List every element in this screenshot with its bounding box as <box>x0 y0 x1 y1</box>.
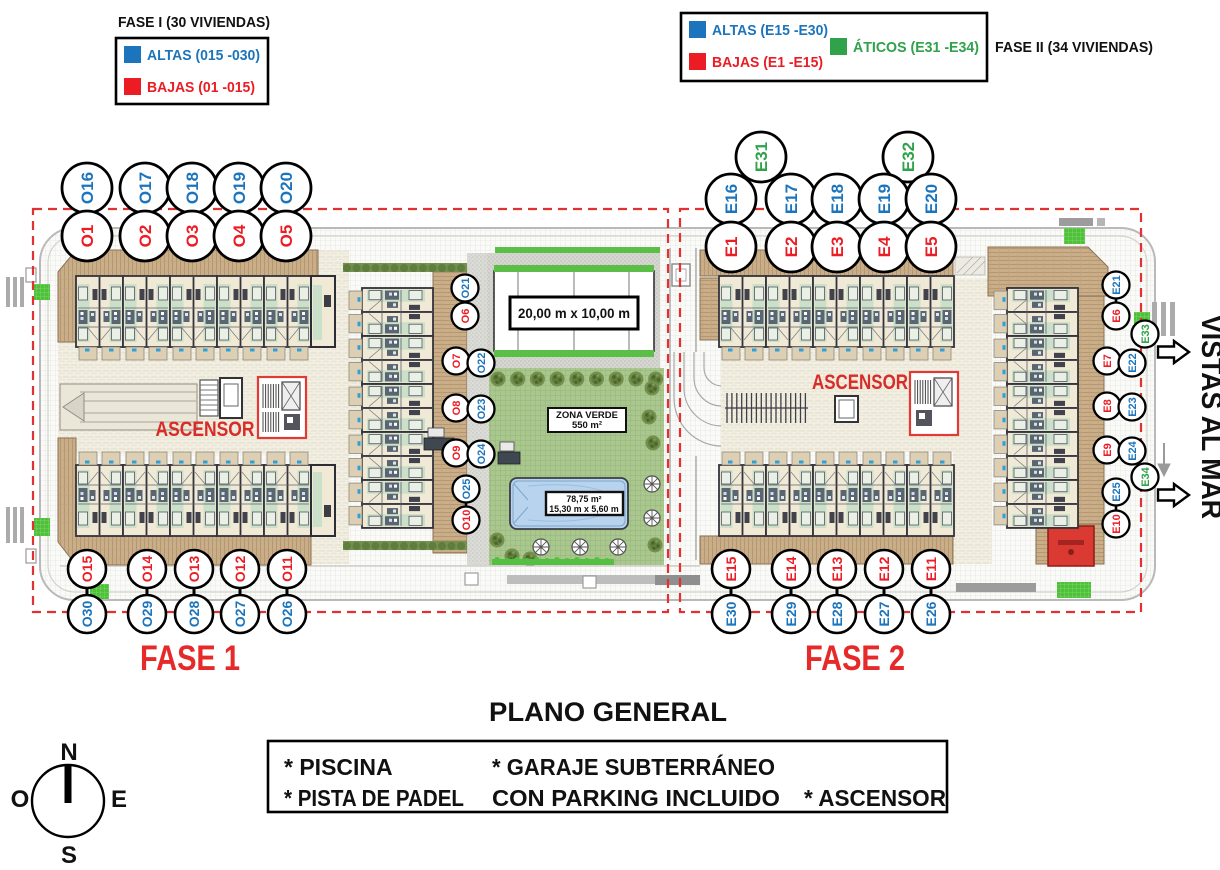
svg-text:E13: E13 <box>829 556 845 581</box>
svg-text:O11: O11 <box>279 556 295 582</box>
svg-text:O4: O4 <box>230 224 249 247</box>
svg-text:O26: O26 <box>279 601 295 628</box>
svg-text:E34: E34 <box>1140 466 1152 486</box>
svg-text:CON PARKING INCLUIDO: CON PARKING INCLUIDO <box>492 785 780 811</box>
svg-text:O15: O15 <box>79 556 95 583</box>
svg-text:E10: E10 <box>1111 514 1123 534</box>
svg-text:E27: E27 <box>876 601 892 626</box>
svg-text:E19: E19 <box>875 184 894 214</box>
svg-text:E33: E33 <box>1140 324 1152 344</box>
svg-text:FASE I (30 VIVIENDAS): FASE I (30 VIVIENDAS) <box>118 14 270 31</box>
svg-text:E2: E2 <box>782 237 801 258</box>
svg-text:E17: E17 <box>782 184 801 214</box>
svg-text:E21: E21 <box>1111 275 1123 295</box>
svg-text:* PISTA DE PADEL: * PISTA DE PADEL <box>284 785 464 811</box>
svg-text:O13: O13 <box>186 556 202 583</box>
svg-text:O18: O18 <box>183 172 202 204</box>
svg-text:E16: E16 <box>722 184 741 214</box>
svg-text:E1: E1 <box>722 237 741 258</box>
svg-text:E28: E28 <box>829 601 845 626</box>
svg-text:E7: E7 <box>1102 354 1114 367</box>
svg-text:O28: O28 <box>186 601 202 628</box>
svg-text:ALTAS (E15 -E30): ALTAS (E15 -E30) <box>712 22 828 39</box>
svg-text:O30: O30 <box>79 601 95 628</box>
svg-text:ALTAS (015 -030): ALTAS (015 -030) <box>147 47 260 64</box>
svg-text:O23: O23 <box>476 399 488 420</box>
svg-text:* GARAJE SUBTERRÁNEO: * GARAJE SUBTERRÁNEO <box>492 753 775 780</box>
svg-text:E31: E31 <box>752 142 771 172</box>
svg-text:BAJAS (01 -015): BAJAS (01 -015) <box>147 79 255 96</box>
svg-text:O5: O5 <box>277 225 296 248</box>
svg-text:BAJAS (E1 -E15): BAJAS (E1 -E15) <box>712 54 823 71</box>
svg-text:O2: O2 <box>136 225 155 248</box>
svg-text:O22: O22 <box>476 353 488 374</box>
svg-text:PLANO GENERAL: PLANO GENERAL <box>489 697 727 727</box>
svg-text:E24: E24 <box>1127 440 1139 460</box>
svg-text:S: S <box>61 842 77 869</box>
svg-text:* PISCINA: * PISCINA <box>284 754 393 780</box>
svg-text:O6: O6 <box>460 309 472 324</box>
svg-text:E22: E22 <box>1127 353 1139 373</box>
svg-text:E14: E14 <box>783 556 799 581</box>
svg-text:O21: O21 <box>460 278 472 299</box>
svg-text:E15: E15 <box>723 556 739 581</box>
svg-text:O10: O10 <box>461 510 473 531</box>
svg-text:550 m²: 550 m² <box>572 420 602 431</box>
svg-text:O9: O9 <box>451 446 463 461</box>
svg-text:FASE II (34 VIVIENDAS): FASE II (34 VIVIENDAS) <box>995 39 1153 56</box>
svg-text:O14: O14 <box>139 556 155 583</box>
svg-text:E30: E30 <box>723 601 739 626</box>
svg-text:78,75 m²: 78,75 m² <box>566 494 601 504</box>
svg-text:E3: E3 <box>828 237 847 258</box>
svg-text:O16: O16 <box>78 172 97 204</box>
svg-text:FASE 2: FASE 2 <box>805 639 905 678</box>
svg-text:VISTAS AL MAR: VISTAS AL MAR <box>1195 315 1220 519</box>
svg-text:O20: O20 <box>277 172 296 204</box>
svg-text:E32: E32 <box>899 142 918 172</box>
svg-text:20,00 m x 10,00 m: 20,00 m x 10,00 m <box>518 305 630 321</box>
svg-text:O7: O7 <box>451 354 463 369</box>
svg-text:O: O <box>11 786 30 813</box>
svg-text:E11: E11 <box>923 557 939 581</box>
svg-text:N: N <box>60 739 77 766</box>
svg-text:O8: O8 <box>451 401 463 416</box>
svg-text:ASCENSOR: ASCENSOR <box>812 371 908 394</box>
svg-text:O12: O12 <box>232 556 248 583</box>
svg-text:E25: E25 <box>1111 482 1123 502</box>
svg-text:FASE 1: FASE 1 <box>140 639 240 678</box>
svg-text:O19: O19 <box>230 172 249 204</box>
svg-text:E8: E8 <box>1102 399 1114 412</box>
svg-text:ASCENSOR: ASCENSOR <box>156 418 255 441</box>
svg-text:O25: O25 <box>461 479 473 500</box>
svg-text:* ASCENSOR: * ASCENSOR <box>804 785 946 811</box>
svg-text:O17: O17 <box>136 172 155 204</box>
svg-text:O24: O24 <box>476 443 488 465</box>
svg-text:E: E <box>111 786 127 813</box>
svg-text:E23: E23 <box>1127 397 1139 417</box>
svg-text:O3: O3 <box>183 225 202 248</box>
svg-text:E4: E4 <box>875 236 894 257</box>
svg-text:ÁTICOS (E31 -E34): ÁTICOS (E31 -E34) <box>853 39 979 56</box>
svg-text:E20: E20 <box>922 184 941 214</box>
svg-text:15,30 m x 5,60 m: 15,30 m x 5,60 m <box>549 504 619 514</box>
svg-text:E5: E5 <box>922 237 941 258</box>
svg-text:E9: E9 <box>1102 443 1114 456</box>
svg-text:E29: E29 <box>783 601 799 626</box>
svg-text:E12: E12 <box>876 556 892 581</box>
svg-text:O27: O27 <box>232 601 248 628</box>
svg-text:O1: O1 <box>78 225 97 248</box>
svg-text:E18: E18 <box>828 184 847 214</box>
svg-text:E6: E6 <box>1111 309 1123 322</box>
svg-text:O29: O29 <box>139 601 155 628</box>
svg-text:E26: E26 <box>923 601 939 626</box>
